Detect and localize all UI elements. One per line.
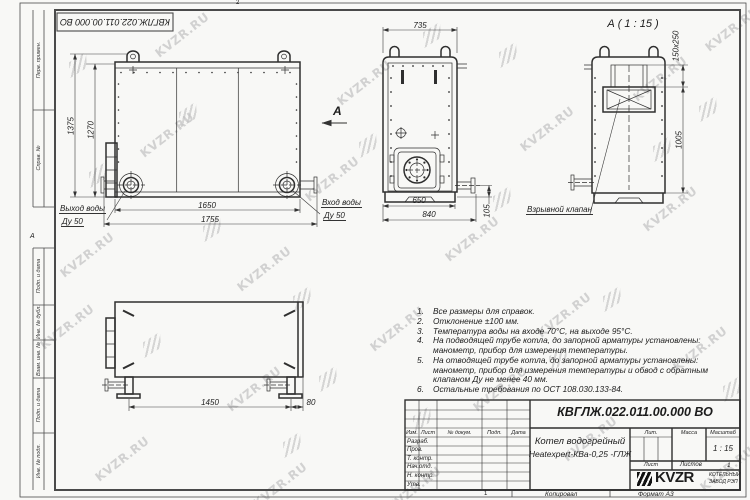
titleblock-name-line2: Heatexpert-КВа-0,25 -ГЛЖ (524, 449, 636, 459)
note-item: 4. На подводящей трубе котла, до запорно… (417, 336, 721, 356)
frame-field-perv: Перв. примен. (36, 42, 42, 79)
note-item: 5. На отводящей трубе котла, до запорной… (417, 356, 721, 385)
inlet-dn: Ду 50 (323, 211, 346, 221)
note-number: 4. (417, 336, 433, 356)
dim-80: 80 (307, 398, 316, 407)
footer-copied: Копировал (545, 491, 577, 498)
section-title: А ( 1 : 15 ) (607, 18, 658, 30)
sheet-label: Лист (630, 462, 672, 468)
frame-field-vzam: Взам. инв. № (36, 342, 42, 376)
row-nkontr: Н. контр. (407, 473, 434, 479)
scale-value: 1 : 15 (706, 444, 740, 453)
drawing-linework (0, 0, 750, 500)
frame-zone-top: 2 (236, 0, 239, 6)
dim-650: 650 (412, 196, 425, 205)
frame-field-podp1: Подп. и дата (36, 259, 42, 293)
inlet-label: Вход воды (321, 198, 362, 208)
row-prov: Пров. (407, 447, 423, 453)
note-text: Остальные требования по ОСТ 108.030.133-… (433, 385, 721, 395)
company-line2: ЗАВОД РЭП (709, 479, 738, 485)
dim-735: 735 (413, 21, 426, 30)
frame-field-podp2: Подп. и дата (36, 388, 42, 422)
note-item: 6. Остальные требования по ОСТ 108.030.1… (417, 385, 721, 395)
dim-1005: 1005 (675, 131, 684, 149)
row-nachotd: Нач.отд. (407, 464, 432, 470)
frame-field-inv-podl: Инв. № подл. (36, 444, 42, 478)
note-text: На отводящей трубе котла, до запорной ар… (433, 356, 721, 385)
frame-zone-left: А (30, 233, 35, 240)
sheets-label: Листов (680, 462, 702, 468)
note-number: 5. (417, 356, 433, 385)
company-line1: КОТЕЛЬНЫЙ (709, 472, 740, 478)
dim-1650: 1650 (198, 201, 216, 210)
row-utv: Утв. (407, 482, 421, 488)
footer-format: Формат А3 (638, 491, 674, 498)
dim-1450: 1450 (201, 398, 219, 407)
row-tkontr: Т. контр. (407, 456, 433, 462)
dim-150x250: 150x250 (672, 31, 681, 62)
section-a-view (568, 47, 688, 215)
frame-field-inv-dubl: Инв. № дубл. (36, 305, 42, 339)
kvzr-logo-text: KVZR (655, 469, 694, 486)
frame-field-sprav: Справ. № (36, 146, 42, 171)
col-data: Дата (507, 430, 530, 436)
titleblock-doc-number: КВГЛЖ.022.011.00.000 ВО (530, 405, 740, 419)
col-list: Лист (419, 430, 437, 436)
titleblock-name-line1: Котел водогрейный (530, 436, 630, 447)
dim-1755: 1755 (201, 215, 219, 224)
notes-list: 1. Все размеры для справок. 2. Отклонени… (417, 307, 721, 395)
frame-zone-bottom: 1 (484, 491, 487, 497)
dim-1375: 1375 (67, 117, 76, 135)
drawing-sheet: KVZR.RU KVZR.RU KVZR.RU KVZR.RU KVZR.RU … (0, 0, 750, 500)
row-razrab: Разраб. (407, 439, 429, 445)
outlet-dn: Ду 50 (61, 217, 84, 227)
col-izm: Изм. (405, 430, 419, 436)
valve-label: Взрывной клапан (526, 205, 593, 215)
kvzr-logo-icon (637, 472, 652, 486)
frame-doc-number-rotated: КВГЛЖ.022.011.00.000 ВО (60, 17, 170, 27)
lit-label: Лит. (630, 430, 672, 436)
dim-1270: 1270 (87, 121, 96, 139)
mass-label: Масса (672, 430, 706, 436)
dim-840: 840 (422, 210, 435, 219)
outlet-label: Выход воды (59, 204, 106, 214)
col-doc: № докум. (437, 430, 482, 436)
note-text: На подводящей трубе котла, до запорной а… (433, 336, 721, 356)
scale-label: Масштаб (706, 430, 740, 436)
note-number: 6. (417, 385, 433, 395)
top-view (102, 302, 303, 411)
sheets-value: 1 (727, 462, 731, 469)
dim-105: 105 (483, 204, 492, 217)
col-podp: Подп. (482, 430, 507, 436)
view-arrow-label: А (333, 104, 342, 118)
side-view (383, 27, 492, 222)
